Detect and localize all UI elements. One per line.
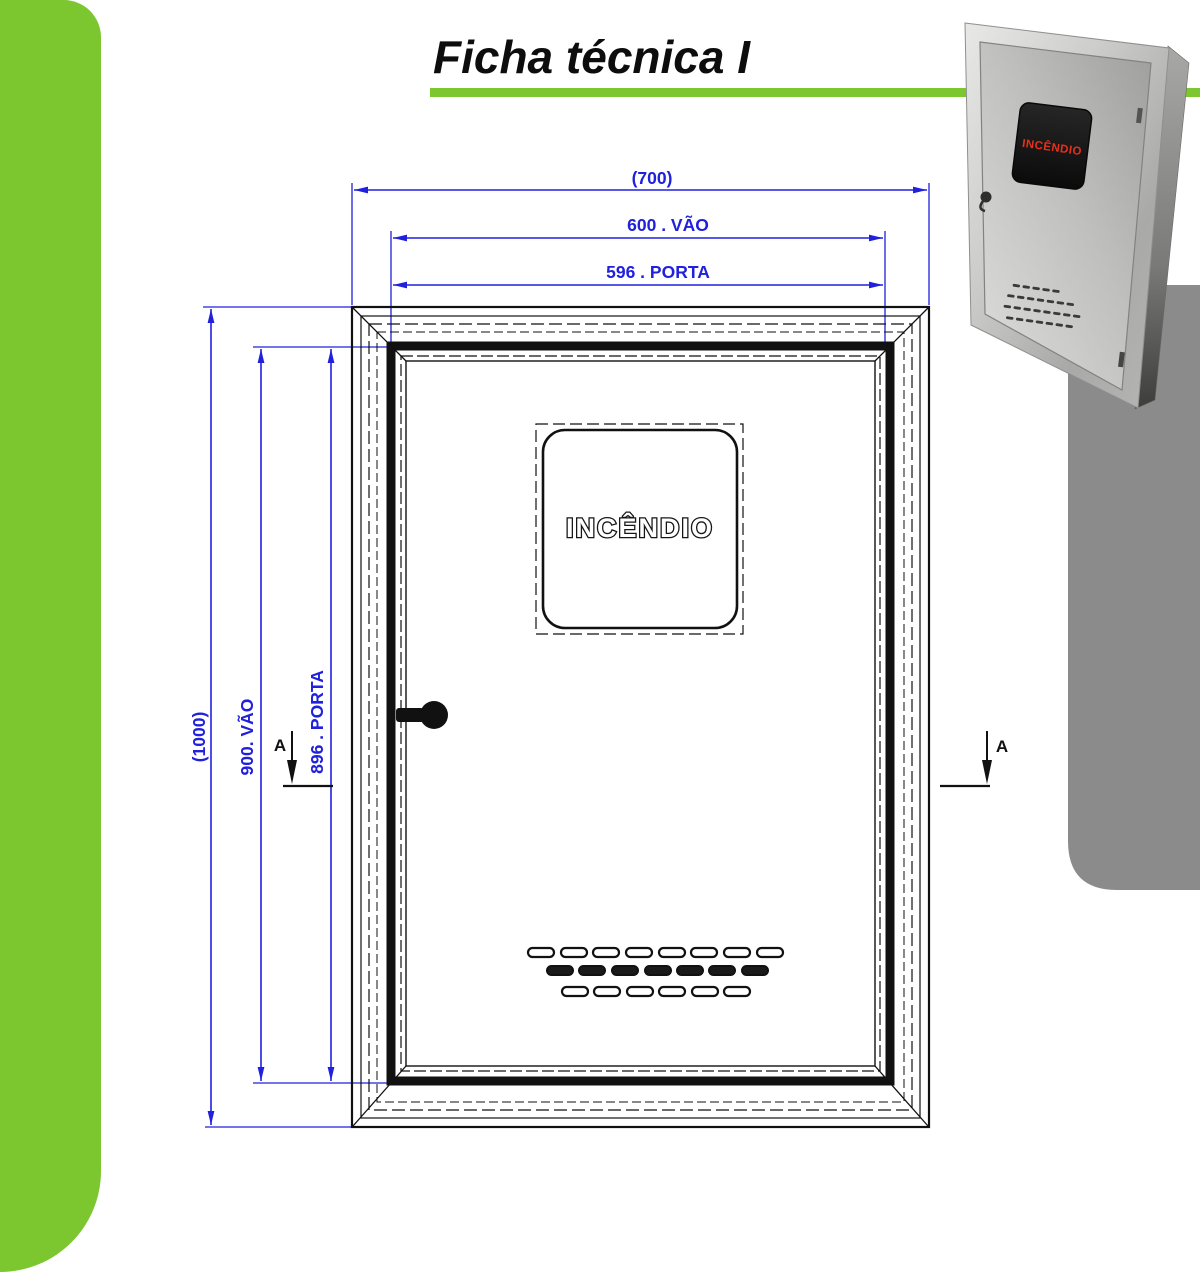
technical-drawing: (700) 600 . VÃO 596 . PORTA (1000) 900. …: [189, 168, 1008, 1127]
dim-label-overall-height: (1000): [189, 712, 209, 763]
vent-louvers: [528, 948, 783, 996]
handle-knob: [420, 701, 448, 729]
product-photo: INCÊNDIO: [965, 23, 1200, 890]
page-title: Ficha técnica I: [433, 30, 750, 84]
vent-row-3: [562, 987, 750, 996]
technical-sheet-scene: (700) 600 . VÃO 596 . PORTA (1000) 900. …: [0, 0, 1200, 1200]
door-handle: [396, 701, 448, 729]
handle-stem: [396, 708, 424, 722]
door-edge-thick-line: [391, 346, 890, 1081]
vent-row-1: [528, 948, 783, 957]
section-arrow-left: [287, 760, 297, 784]
dimension-lines: [211, 190, 927, 1125]
dim-label-overall-width: (700): [632, 168, 673, 188]
section-arrow-right: [982, 760, 992, 784]
door-sign-panel: INCÊNDIO: [536, 424, 743, 634]
dim-label-porta-width: 596 . PORTA: [606, 262, 710, 282]
door-sign-label: INCÊNDIO: [566, 512, 714, 543]
section-marker-right: A: [940, 731, 1008, 786]
dim-label-vao-width: 600 . VÃO: [627, 214, 709, 235]
vent-row-2: [547, 966, 768, 975]
dim-label-vao-height: 900. VÃO: [236, 699, 257, 776]
section-label-right: A: [996, 737, 1008, 756]
section-label-left: A: [274, 736, 286, 755]
dim-label-porta-height: 896 . PORTA: [307, 670, 327, 774]
door-hidden-line: [401, 356, 880, 1071]
door-inner-line: [406, 361, 875, 1066]
